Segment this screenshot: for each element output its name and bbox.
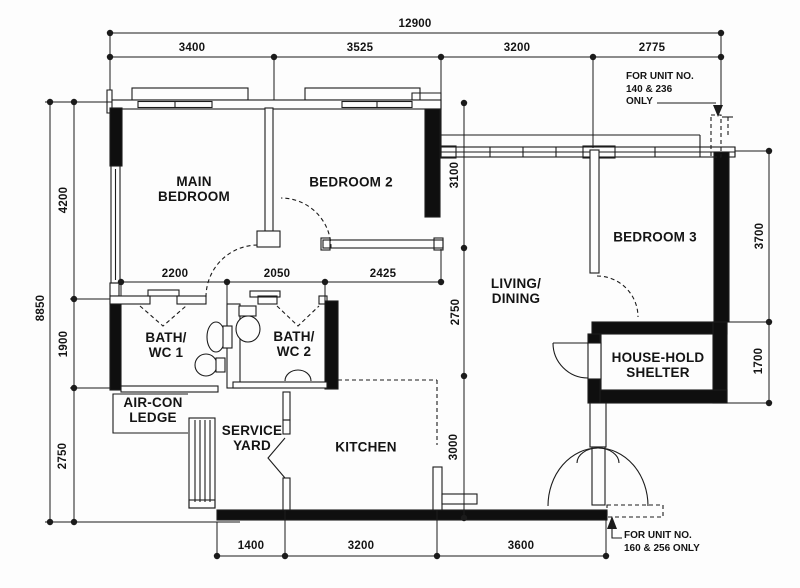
service-yard-door [268,438,285,478]
wall-bottom [217,510,607,520]
bath2-folding-door [277,306,319,326]
door-arcs [140,198,638,445]
main-bedroom-door-arc [206,245,258,297]
wall-bedroom3-right [714,152,729,322]
bath1-door-track [148,290,179,296]
floor-plan-page: 12900 3400 3525 3200 2775 8850 4200 1900… [0,0,800,588]
wall-bath1-left [110,301,121,390]
bath2-toilet-bowl [236,316,260,342]
window-ledge-1 [132,88,248,100]
wall-bath2-right [325,301,338,389]
bath2-toilet-tank [239,306,256,316]
bath1-basin [195,354,217,376]
wall-pier-left [110,108,122,166]
bath1-folding-door [140,306,186,326]
arrow-up-icon [607,516,617,529]
bedroom3-door-arc [597,276,638,317]
bath1-toilet-tank [223,326,232,348]
wall-pier-bedroom2 [425,109,440,217]
floor-plan-drawing [0,0,800,588]
bath2-basin [285,370,311,381]
shelter-door [553,343,601,379]
drying-rack [189,418,215,508]
optional-door-bottom [607,505,663,517]
bath1-toilet-bowl [207,322,225,352]
aircon-ledge-outline [113,394,188,433]
entrance-door [548,447,648,506]
household-shelter-walls [553,322,727,447]
window-ledge-2 [305,88,420,100]
bath-fixtures [195,306,311,381]
